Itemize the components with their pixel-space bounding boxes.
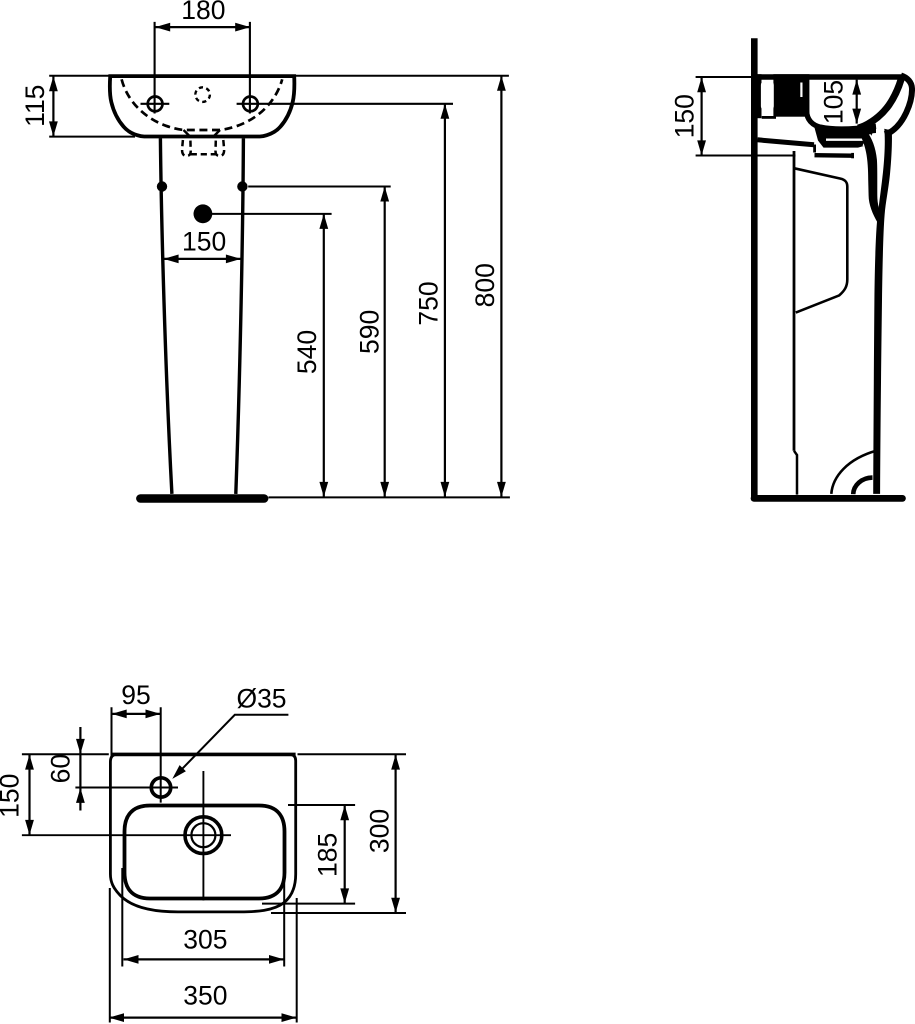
svg-text:350: 350 — [183, 981, 227, 1011]
svg-text:305: 305 — [183, 925, 227, 955]
svg-text:800: 800 — [470, 263, 500, 307]
svg-text:750: 750 — [413, 281, 443, 325]
svg-text:150: 150 — [182, 227, 226, 257]
svg-text:185: 185 — [312, 833, 342, 877]
svg-text:60: 60 — [46, 754, 76, 783]
svg-text:300: 300 — [364, 809, 394, 853]
svg-text:115: 115 — [20, 85, 50, 127]
svg-text:105: 105 — [819, 80, 849, 124]
svg-text:95: 95 — [121, 680, 150, 710]
svg-text:180: 180 — [181, 0, 225, 25]
svg-text:540: 540 — [292, 330, 322, 374]
svg-text:Ø35: Ø35 — [236, 684, 286, 714]
svg-text:150: 150 — [0, 774, 24, 818]
svg-text:150: 150 — [670, 94, 700, 138]
svg-text:590: 590 — [355, 310, 385, 354]
